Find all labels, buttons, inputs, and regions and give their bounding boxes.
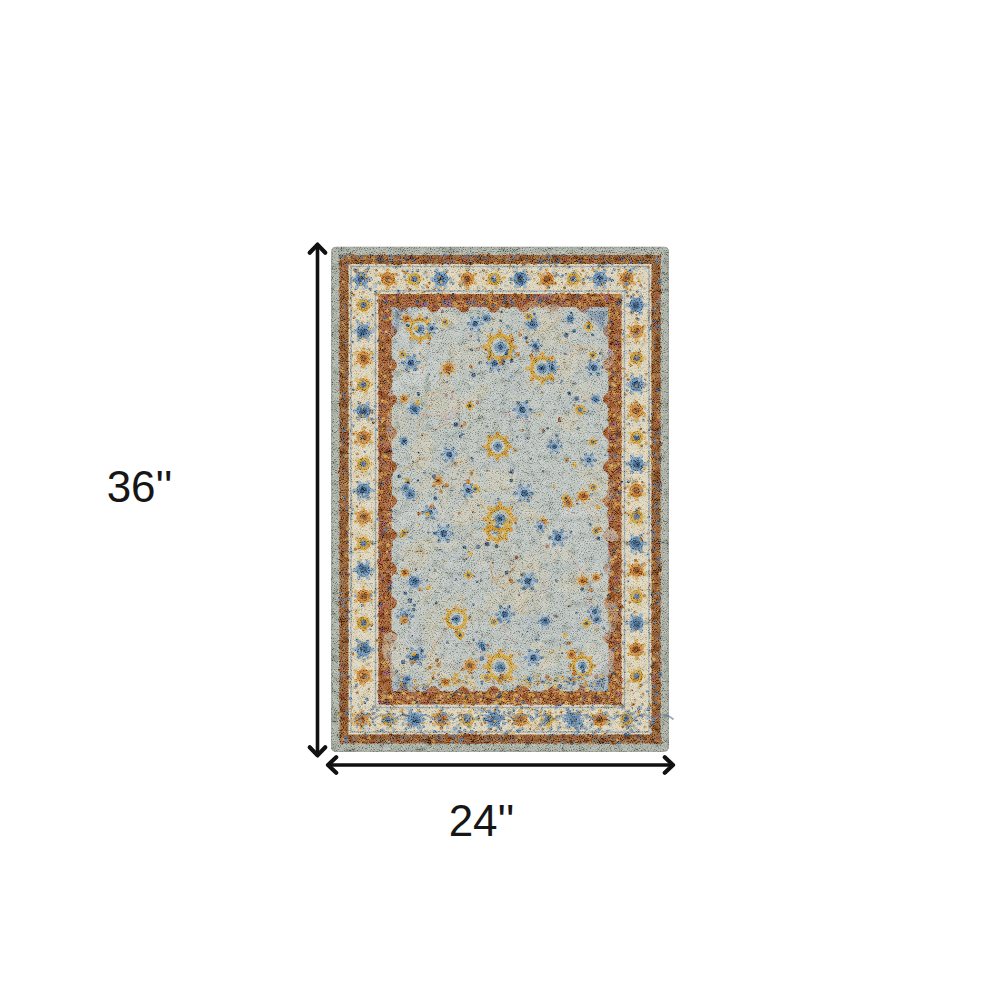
svg-text:36'': 36''	[107, 462, 173, 511]
svg-text:24'': 24''	[449, 796, 515, 845]
